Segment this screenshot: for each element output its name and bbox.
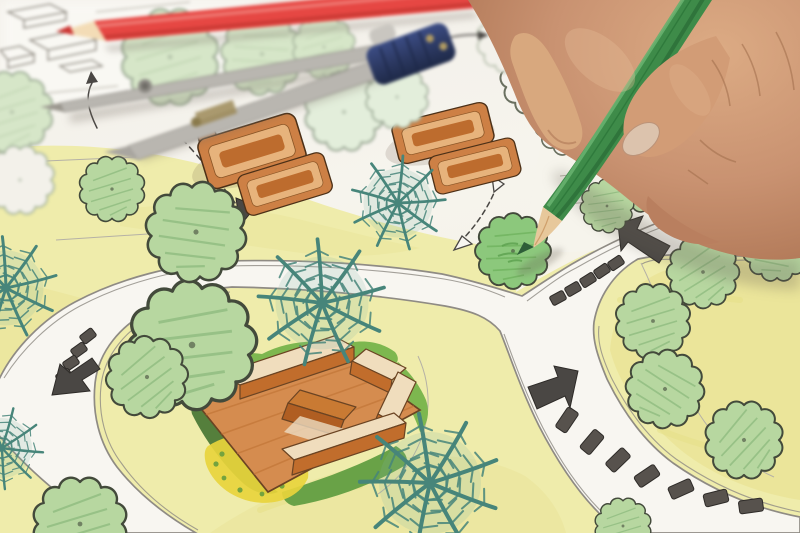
tree-shaded	[80, 157, 145, 222]
tree-shaded	[616, 284, 690, 358]
photo-canvas: Landscape architect colouring a garden d…	[0, 0, 800, 533]
landscape-plan-photo: Landscape architect colouring a garden d…	[0, 0, 800, 533]
